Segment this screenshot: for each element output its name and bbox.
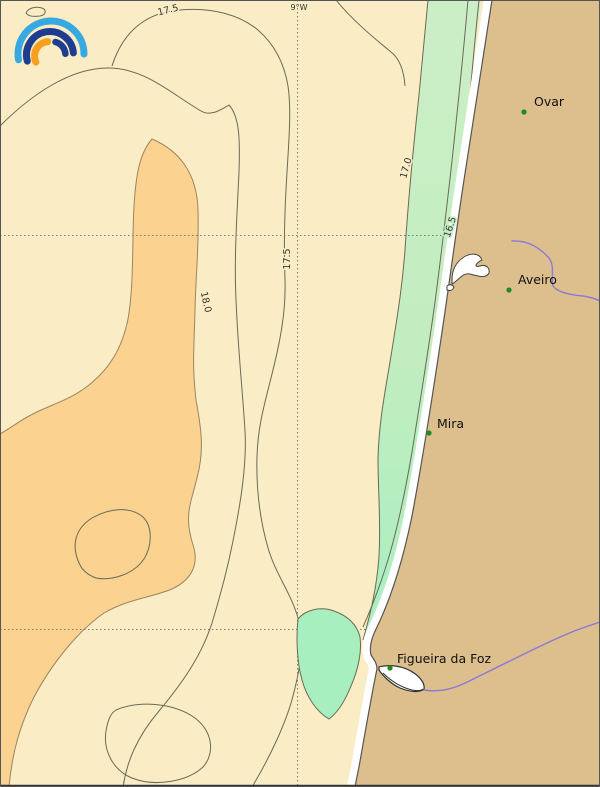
town-label-mira: Mira — [437, 416, 464, 431]
town-marker-ovar — [521, 109, 526, 114]
isotherm-label-17-5-mid: 17.5 — [282, 248, 293, 269]
town-marker-aveiro — [506, 287, 511, 292]
meridian-label: 9°W — [291, 3, 308, 12]
town-label-aveiro: Aveiro — [518, 272, 557, 287]
town-label-figueira: Figueira da Foz — [397, 651, 492, 666]
town-label-ovar: Ovar — [534, 94, 565, 109]
town-marker-mira — [426, 430, 431, 435]
map-viewport: 9°W 17.5 17.5 18.0 17.0 16.5 Ovar Aveiro… — [0, 0, 600, 787]
town-marker-figueira — [387, 665, 392, 670]
map-canvas: 9°W 17.5 17.5 18.0 17.0 16.5 Ovar Aveiro… — [0, 0, 600, 787]
